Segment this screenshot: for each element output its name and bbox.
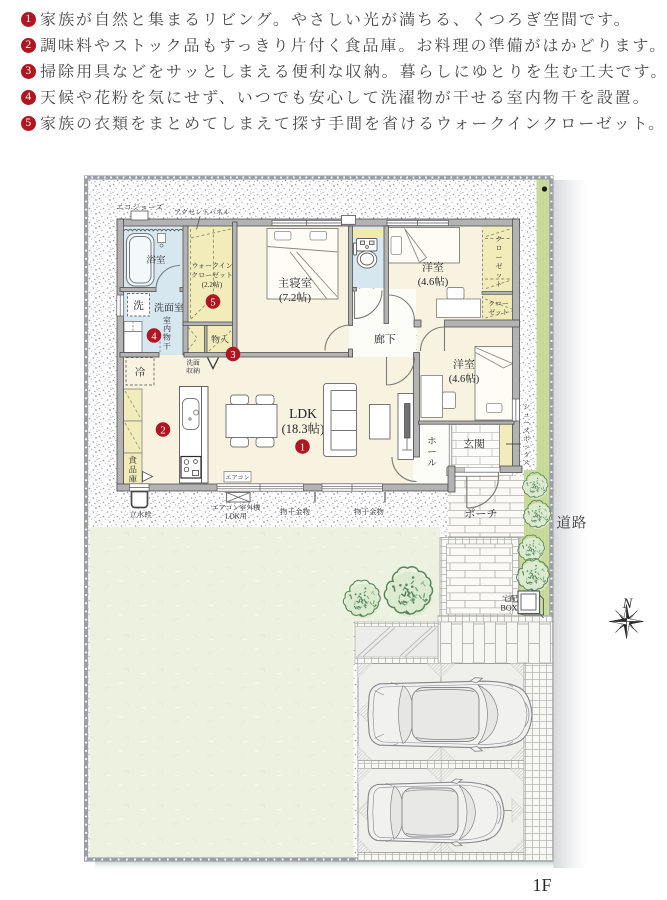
svg-text:廊下: 廊下 [374, 333, 396, 346]
svg-text:宅配BOX: 宅配BOX [501, 595, 518, 613]
svg-text:エアコン室外機: エアコン室外機 [212, 504, 261, 512]
svg-text:ホール: ホール [427, 436, 437, 469]
svg-text:洗面室: 洗面室 [154, 302, 184, 314]
svg-text:冷: 冷 [135, 367, 146, 379]
svg-text:室内物干: 室内物干 [163, 316, 171, 351]
svg-text:(7.2帖): (7.2帖) [279, 291, 311, 304]
svg-text:洗: 洗 [133, 300, 144, 312]
svg-text:3: 3 [230, 350, 235, 361]
svg-text:物干金物: 物干金物 [280, 508, 310, 517]
svg-text:立水栓: 立水栓 [129, 510, 152, 519]
svg-text:4: 4 [151, 331, 157, 342]
svg-text:玄関: 玄関 [464, 439, 485, 451]
svg-text:2: 2 [160, 425, 165, 436]
svg-text:道路: 道路 [557, 515, 588, 532]
svg-text:洋室: 洋室 [422, 261, 444, 274]
svg-text:ポーチ: ポーチ [465, 509, 498, 521]
svg-text:(18.3帖): (18.3帖) [282, 422, 325, 436]
svg-text:LDK用: LDK用 [225, 513, 246, 521]
svg-text:1: 1 [300, 442, 305, 453]
svg-text:クローゼット: クローゼット [496, 236, 503, 289]
svg-text:洋室: 洋室 [453, 358, 475, 371]
svg-text:LDK: LDK [289, 406, 317, 421]
svg-text:(4.6帖): (4.6帖) [449, 373, 480, 385]
svg-text:1F: 1F [532, 875, 551, 895]
svg-text:エアコン: エアコン [225, 475, 249, 482]
svg-text:主寝室: 主寝室 [278, 277, 313, 290]
svg-text:食品庫: 食品庫 [129, 455, 138, 484]
svg-text:(4.6帖): (4.6帖) [418, 276, 449, 288]
svg-text:シューズボックス: シューズボックス [523, 404, 530, 467]
svg-text:エコジョーズ: エコジョーズ [116, 204, 163, 212]
svg-text:物干金物: 物干金物 [354, 508, 384, 517]
svg-text:洗面収納: 洗面収納 [186, 359, 200, 375]
svg-text:浴室: 浴室 [146, 255, 166, 266]
svg-text:アクセントパネル: アクセントパネル [174, 209, 230, 217]
svg-text:5: 5 [210, 297, 215, 308]
svg-text:物入: 物入 [211, 335, 229, 345]
